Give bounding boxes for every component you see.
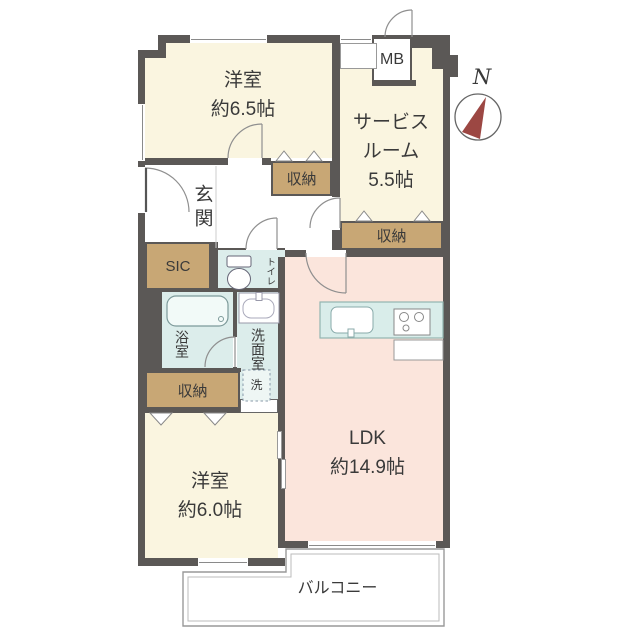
bedroom65-door-arc [228, 124, 262, 158]
vanity-faucet [256, 293, 262, 301]
entrance-name: 玄関 [192, 184, 213, 232]
toilet-tank [227, 256, 251, 267]
label-toilet: トイレ [262, 251, 276, 291]
closet3-door-mark [150, 413, 172, 425]
toilet-bowl [228, 269, 251, 290]
label-bedroom65: 洋室 約6.5帖 [158, 66, 328, 124]
kitchen-faucet [348, 329, 354, 337]
label-balcony: バルコニー [255, 577, 420, 601]
mb-door-arc [385, 10, 412, 37]
laundry-name: 洗 [250, 378, 262, 392]
closet2-door-mark [356, 211, 372, 221]
ldk-door-arc [306, 253, 346, 293]
label-service-room: サービス ルーム 5.5帖 [341, 108, 441, 195]
label-bathroom: 浴室 [171, 317, 192, 371]
bedroom60-name: 洋室 [140, 467, 280, 496]
closet1-door-mark [276, 151, 292, 161]
label-washroom: 洗面室 [247, 320, 268, 378]
label-bedroom60: 洋室 約6.0帖 [140, 467, 280, 525]
closet2-door-mark [414, 211, 430, 221]
closet1-door-mark [306, 151, 322, 161]
ldk-name: LDK [290, 424, 445, 453]
service-name-2: ルーム [341, 137, 441, 166]
toilet-door-arc [246, 218, 277, 249]
label-entrance: 玄関 [187, 166, 216, 250]
ldk-size: 約14.9帖 [290, 453, 445, 482]
closet3-door-mark [204, 413, 226, 425]
floor-plan: 収納 収納 収納 SIC MB [0, 0, 640, 640]
service-name-1: サービス [341, 108, 441, 137]
label-laundry: 洗 [243, 376, 270, 394]
front-door-arc [145, 168, 189, 212]
bathroom-name: 浴室 [174, 330, 190, 358]
bedroom65-name: 洋室 [158, 66, 328, 95]
balcony-name: バルコニー [298, 580, 378, 597]
bedroom60-size: 約6.0帖 [140, 496, 280, 525]
service-door-arc [310, 198, 340, 228]
toilet-name: トイレ [264, 257, 275, 286]
label-ldk: LDK 約14.9帖 [290, 424, 445, 482]
compass-north-text: N [473, 65, 491, 89]
washroom-name: 洗面室 [250, 328, 266, 370]
fridge-space [394, 340, 443, 360]
bath-door-arc [205, 337, 235, 367]
label-compass-north: N [468, 62, 496, 94]
bedroom65-size: 約6.5帖 [158, 95, 328, 124]
service-size: 5.5帖 [341, 166, 441, 195]
stove [394, 309, 430, 335]
